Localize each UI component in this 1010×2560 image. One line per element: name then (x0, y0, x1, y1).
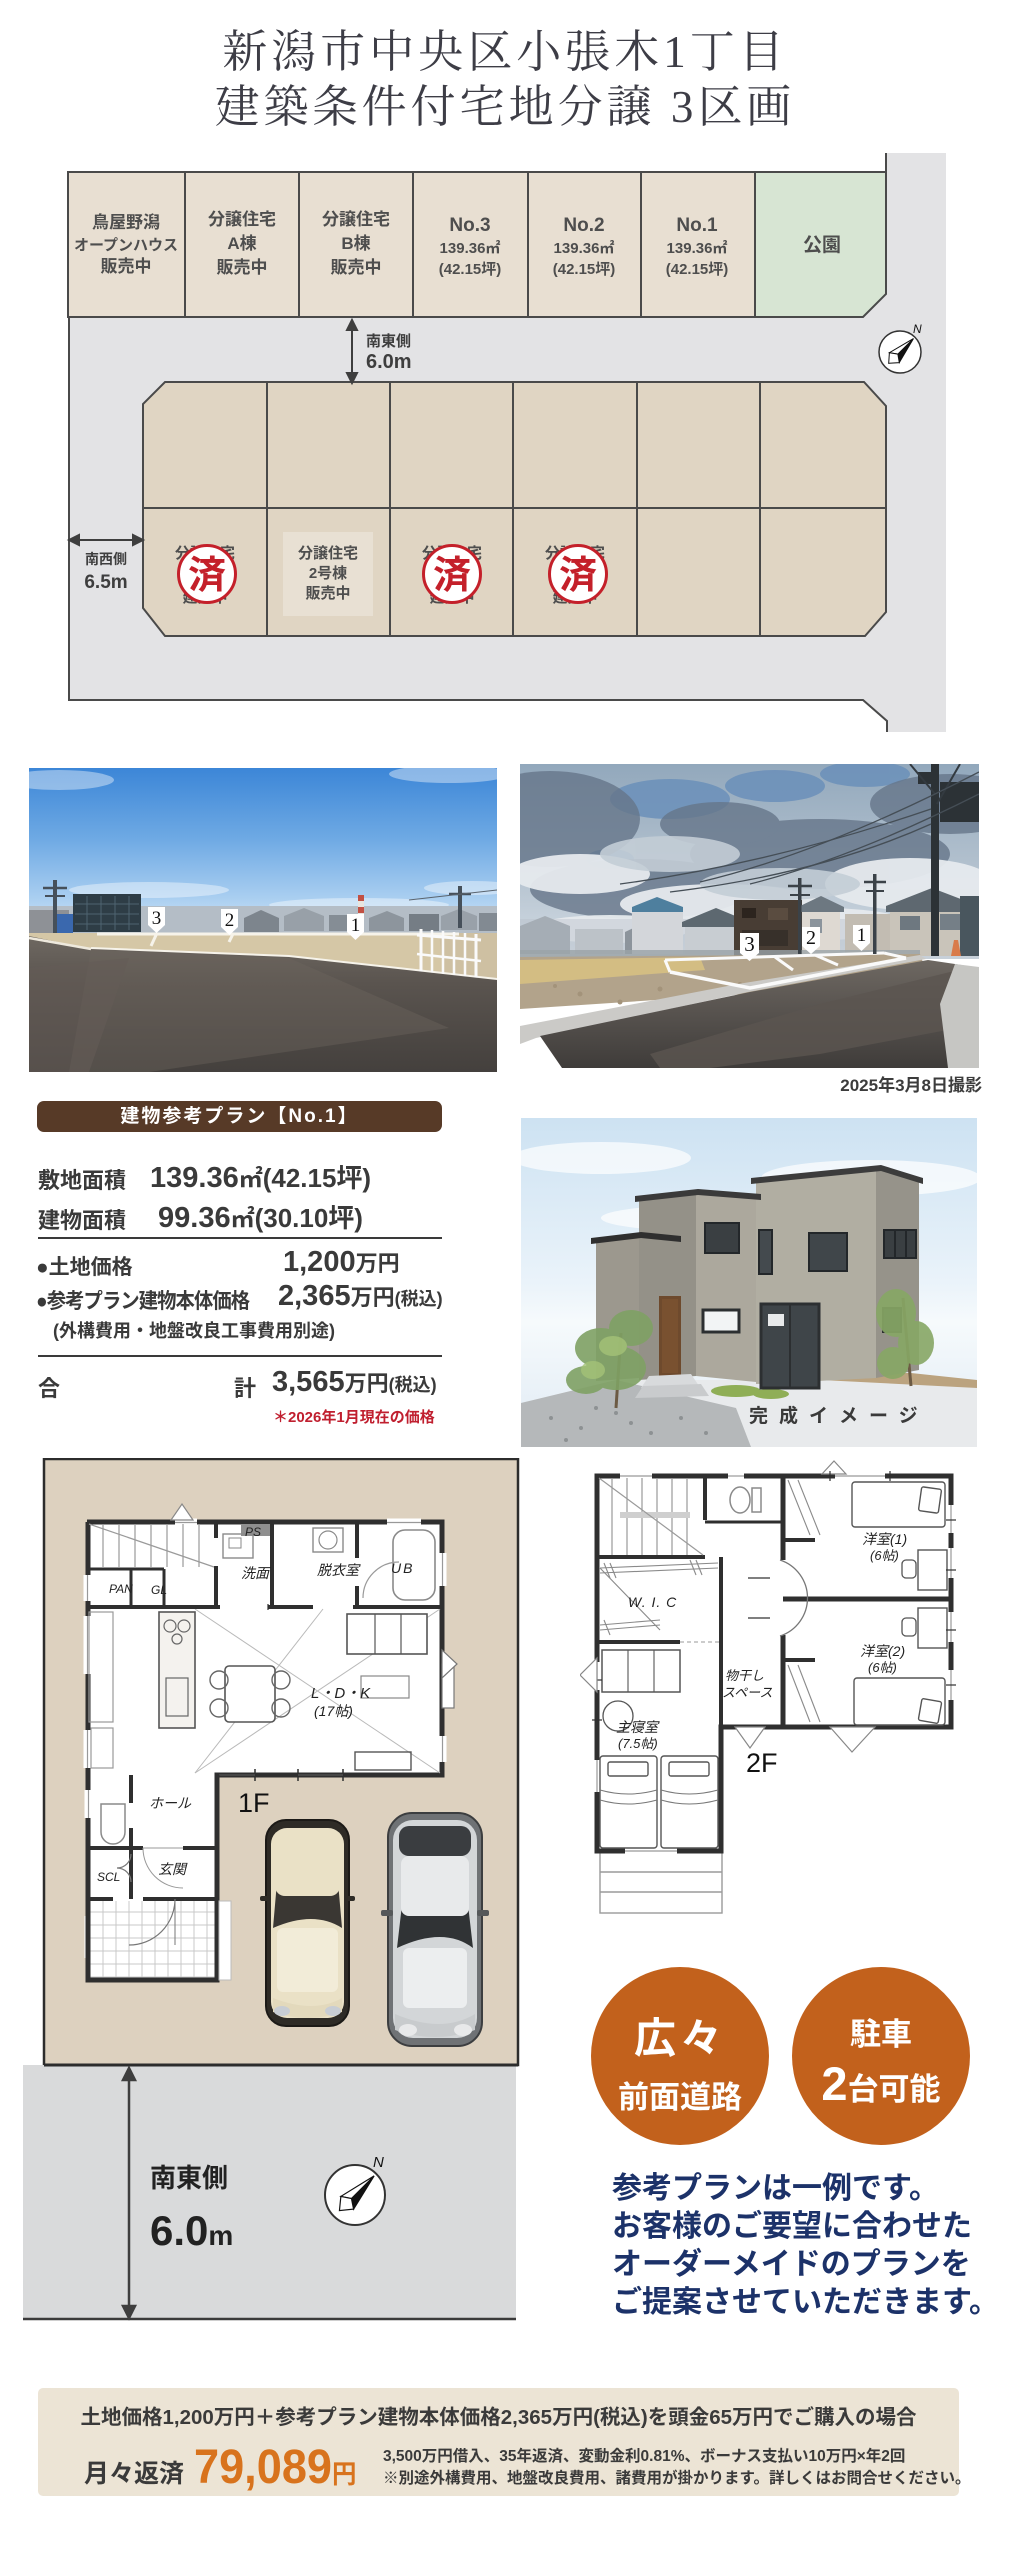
svg-text:販売中: 販売中 (217, 257, 268, 277)
svg-text:2号棟: 2号棟 (309, 564, 347, 582)
svg-text:3: 3 (744, 932, 755, 956)
svg-text:B棟: B棟 (341, 234, 370, 253)
svg-text:6.5m: 6.5m (84, 572, 127, 593)
svg-text:W. I. C: W. I. C (628, 1594, 677, 1610)
svg-text:6.0m: 6.0m (366, 351, 412, 373)
svg-text:分譲住宅: 分譲住宅 (208, 210, 276, 229)
svg-text:物干し: 物干し (725, 1668, 764, 1683)
svg-text:PS: PS (245, 1525, 261, 1539)
svg-text:販売中: 販売中 (305, 585, 350, 602)
svg-text:2: 2 (806, 927, 816, 949)
svg-text:販売中: 販売中 (101, 256, 152, 276)
svg-text:(17帖): (17帖) (314, 1703, 353, 1719)
svg-text:済: 済 (559, 555, 597, 597)
svg-text:公園: 公園 (803, 234, 841, 256)
svg-text:(7.5帖): (7.5帖) (618, 1736, 658, 1751)
svg-text:No.1: No.1 (676, 215, 718, 236)
svg-text:主寝室: 主寝室 (616, 1719, 660, 1735)
svg-text:南東側: 南東側 (366, 333, 411, 350)
svg-text:GL: GL (151, 1583, 167, 1597)
svg-text:3: 3 (152, 908, 162, 929)
svg-text:PAN: PAN (109, 1582, 133, 1596)
svg-text:南西側: 南西側 (85, 551, 127, 567)
svg-text:L・D・K: L・D・K (311, 1685, 371, 1702)
svg-text:南東側: 南東側 (150, 2163, 228, 2193)
svg-text:1: 1 (857, 925, 867, 946)
svg-text:(42.15坪): (42.15坪) (666, 261, 729, 278)
svg-text:脱衣室: 脱衣室 (317, 1562, 361, 1578)
svg-text:販売中: 販売中 (331, 257, 382, 277)
svg-text:玄関: 玄関 (158, 1861, 188, 1877)
svg-text:N: N (913, 322, 922, 336)
svg-text:A棟: A棟 (227, 234, 256, 253)
svg-text:1: 1 (351, 915, 361, 936)
svg-text:済: 済 (188, 555, 226, 597)
svg-text:鳥屋野潟: 鳥屋野潟 (92, 213, 160, 232)
svg-text:ホール: ホール (149, 1795, 192, 1811)
svg-text:No.3: No.3 (449, 215, 490, 236)
svg-text:オープンハウス: オープンハウス (74, 237, 178, 254)
svg-text:(6帖): (6帖) (868, 1660, 897, 1675)
svg-text:分譲住宅: 分譲住宅 (298, 544, 358, 562)
svg-text:UB: UB (391, 1560, 414, 1576)
svg-text:洗面: 洗面 (241, 1565, 271, 1581)
svg-text:139.36㎡: 139.36㎡ (440, 239, 501, 257)
svg-text:139.36㎡: 139.36㎡ (667, 239, 728, 257)
svg-text:SCL: SCL (97, 1870, 120, 1884)
svg-text:スペース: スペース (722, 1685, 772, 1700)
svg-text:洋室(1): 洋室(1) (862, 1531, 907, 1547)
svg-text:2: 2 (225, 910, 235, 931)
svg-text:1F: 1F (238, 1788, 270, 1818)
svg-text:(42.15坪): (42.15坪) (439, 261, 502, 278)
svg-text:洋室(2): 洋室(2) (860, 1643, 905, 1659)
svg-text:(6帖): (6帖) (870, 1548, 899, 1563)
svg-text:済: 済 (433, 555, 471, 597)
svg-text:No.2: No.2 (563, 215, 604, 236)
svg-text:139.36㎡: 139.36㎡ (554, 239, 615, 257)
svg-text:(42.15坪): (42.15坪) (553, 261, 616, 278)
svg-text:N: N (373, 2154, 384, 2171)
svg-text:分譲住宅: 分譲住宅 (322, 210, 390, 229)
